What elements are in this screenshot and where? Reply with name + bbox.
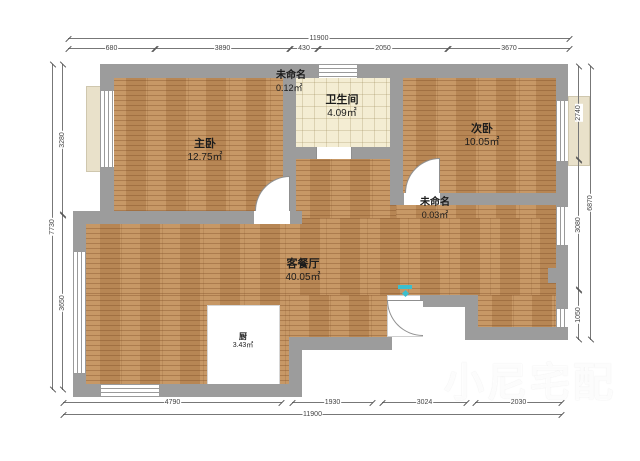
- window-right-lower[interactable]: [556, 308, 568, 328]
- wall-center-bottom: [289, 337, 392, 350]
- window-bottom-left[interactable]: [100, 384, 160, 397]
- window-top-bathroom[interactable]: [318, 64, 358, 78]
- dimension-right-seg: 1050: [578, 290, 579, 340]
- dimension-top-seg: 3890: [155, 48, 290, 49]
- cube-logo-icon: [390, 356, 436, 402]
- floor-plan-canvas: 主卧 12.75㎡ 未命名 0.12㎡ 卫生间 4.09㎡ 次卧 10.05㎡ …: [0, 0, 640, 461]
- dimension-right-total: 6870: [590, 66, 591, 340]
- door-leaf-entry: [387, 300, 423, 301]
- dimension-bottom-seg: 1930: [292, 402, 373, 403]
- dimension-top-seg: 3670: [448, 48, 570, 49]
- window-second-bay[interactable]: [556, 100, 568, 162]
- room-floor-kitchen[interactable]: [207, 305, 280, 385]
- dimension-bottom-total: 11900: [63, 414, 562, 415]
- dimension-top-seg: 680: [68, 48, 155, 49]
- room-floor-living-south-mid[interactable]: [289, 295, 390, 342]
- door-leaf-second: [439, 158, 440, 193]
- door-opening-bathroom[interactable]: [316, 147, 352, 159]
- dimension-top-seg: 430: [290, 48, 318, 49]
- dimension-bottom-seg: 2030: [475, 402, 562, 403]
- dimension-left-seg: 3280: [62, 64, 63, 215]
- dimension-left-total: 7730: [52, 64, 53, 390]
- window-right-upper[interactable]: [556, 206, 568, 246]
- door-leaf-master: [289, 176, 290, 211]
- door-opening-second[interactable]: [404, 193, 440, 205]
- window-master-bay[interactable]: [100, 90, 114, 168]
- wall-pier-right: [548, 268, 568, 283]
- window-left-living[interactable]: [73, 251, 86, 374]
- dimension-top-total: 11900: [68, 38, 570, 39]
- wall-bottom-right: [465, 327, 568, 340]
- dimension-top-seg: 2050: [318, 48, 448, 49]
- watermark-text: 小尼宅配: [444, 350, 616, 408]
- dimension-right-seg: 2740: [578, 66, 579, 160]
- dimension-left-seg: 3650: [62, 215, 63, 390]
- dimension-bottom-seg: 3024: [382, 402, 467, 403]
- room-floor-living-main[interactable]: [80, 218, 562, 302]
- wall-bathroom-right: [390, 64, 403, 205]
- dimension-bottom-seg: 4790: [63, 402, 282, 403]
- door-opening-master[interactable]: [254, 211, 290, 224]
- room-floor-bathroom[interactable]: [290, 70, 396, 154]
- dimension-right-seg: 3080: [578, 160, 579, 290]
- entry-marker-icon: [398, 285, 412, 289]
- room-floor-hall-below-bath[interactable]: [290, 150, 396, 224]
